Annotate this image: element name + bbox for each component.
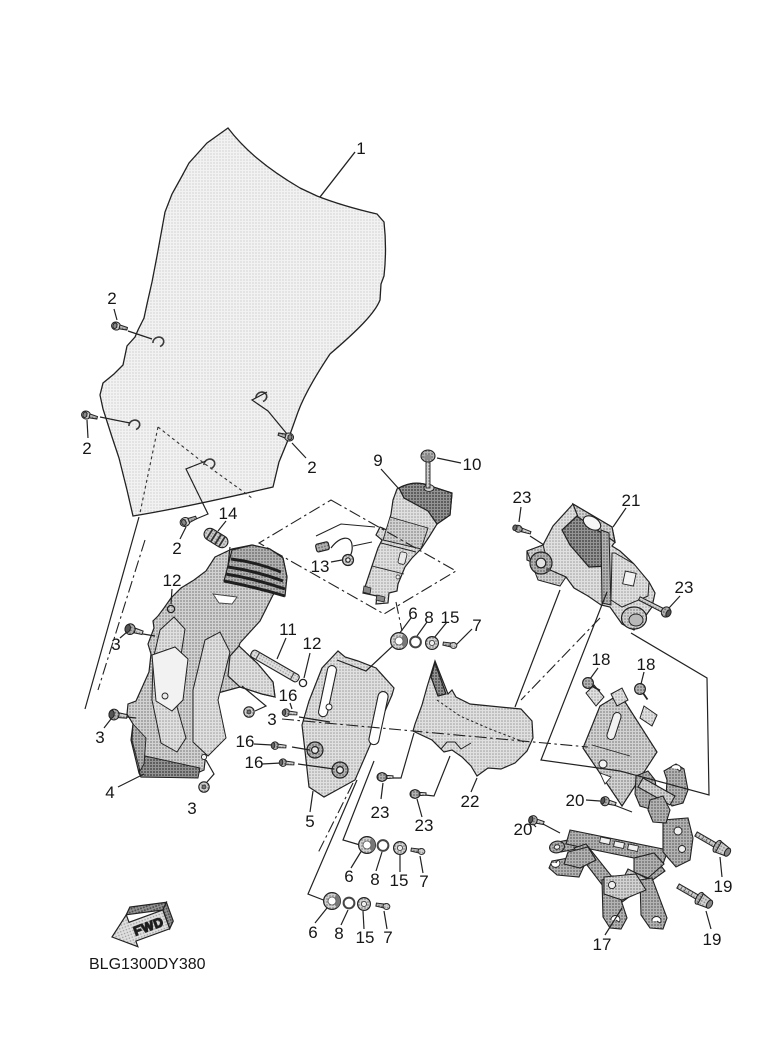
svg-text:9: 9	[373, 451, 382, 470]
svg-text:12: 12	[303, 634, 322, 653]
svg-text:8: 8	[424, 608, 433, 627]
svg-text:18: 18	[637, 655, 656, 674]
svg-text:6: 6	[344, 867, 353, 886]
svg-text:16: 16	[279, 686, 298, 705]
svg-text:10: 10	[463, 455, 482, 474]
svg-text:2: 2	[307, 458, 316, 477]
svg-text:5: 5	[305, 812, 314, 831]
svg-text:7: 7	[472, 616, 481, 635]
svg-text:23: 23	[513, 488, 532, 507]
svg-text:19: 19	[703, 930, 722, 949]
svg-text:13: 13	[311, 557, 330, 576]
svg-text:4: 4	[105, 783, 114, 802]
svg-text:3: 3	[111, 635, 120, 654]
svg-text:3: 3	[187, 799, 196, 818]
svg-text:8: 8	[370, 870, 379, 889]
svg-text:11: 11	[279, 620, 297, 639]
svg-text:7: 7	[419, 872, 428, 891]
svg-text:21: 21	[622, 491, 641, 510]
svg-text:8: 8	[334, 924, 343, 943]
svg-text:20: 20	[514, 820, 533, 839]
svg-text:16: 16	[245, 753, 264, 772]
svg-text:15: 15	[441, 608, 460, 627]
svg-text:3: 3	[95, 728, 104, 747]
svg-text:1: 1	[356, 139, 365, 158]
svg-text:12: 12	[163, 571, 182, 590]
svg-text:15: 15	[356, 928, 375, 947]
svg-text:22: 22	[461, 792, 480, 811]
svg-text:BLG1300DY380: BLG1300DY380	[89, 956, 206, 973]
svg-text:6: 6	[408, 604, 417, 623]
svg-text:2: 2	[82, 439, 91, 458]
svg-text:19: 19	[714, 877, 733, 896]
svg-text:23: 23	[415, 816, 434, 835]
svg-text:14: 14	[219, 504, 238, 523]
svg-text:2: 2	[172, 539, 181, 558]
svg-text:2: 2	[107, 289, 116, 308]
svg-text:15: 15	[390, 871, 409, 890]
svg-text:18: 18	[592, 650, 611, 669]
svg-text:23: 23	[371, 803, 390, 822]
svg-text:7: 7	[383, 928, 392, 947]
svg-text:23: 23	[675, 578, 694, 597]
svg-text:17: 17	[593, 935, 612, 954]
svg-text:6: 6	[308, 923, 317, 942]
svg-text:3: 3	[267, 710, 276, 729]
svg-text:16: 16	[236, 732, 255, 751]
svg-text:20: 20	[566, 791, 585, 810]
